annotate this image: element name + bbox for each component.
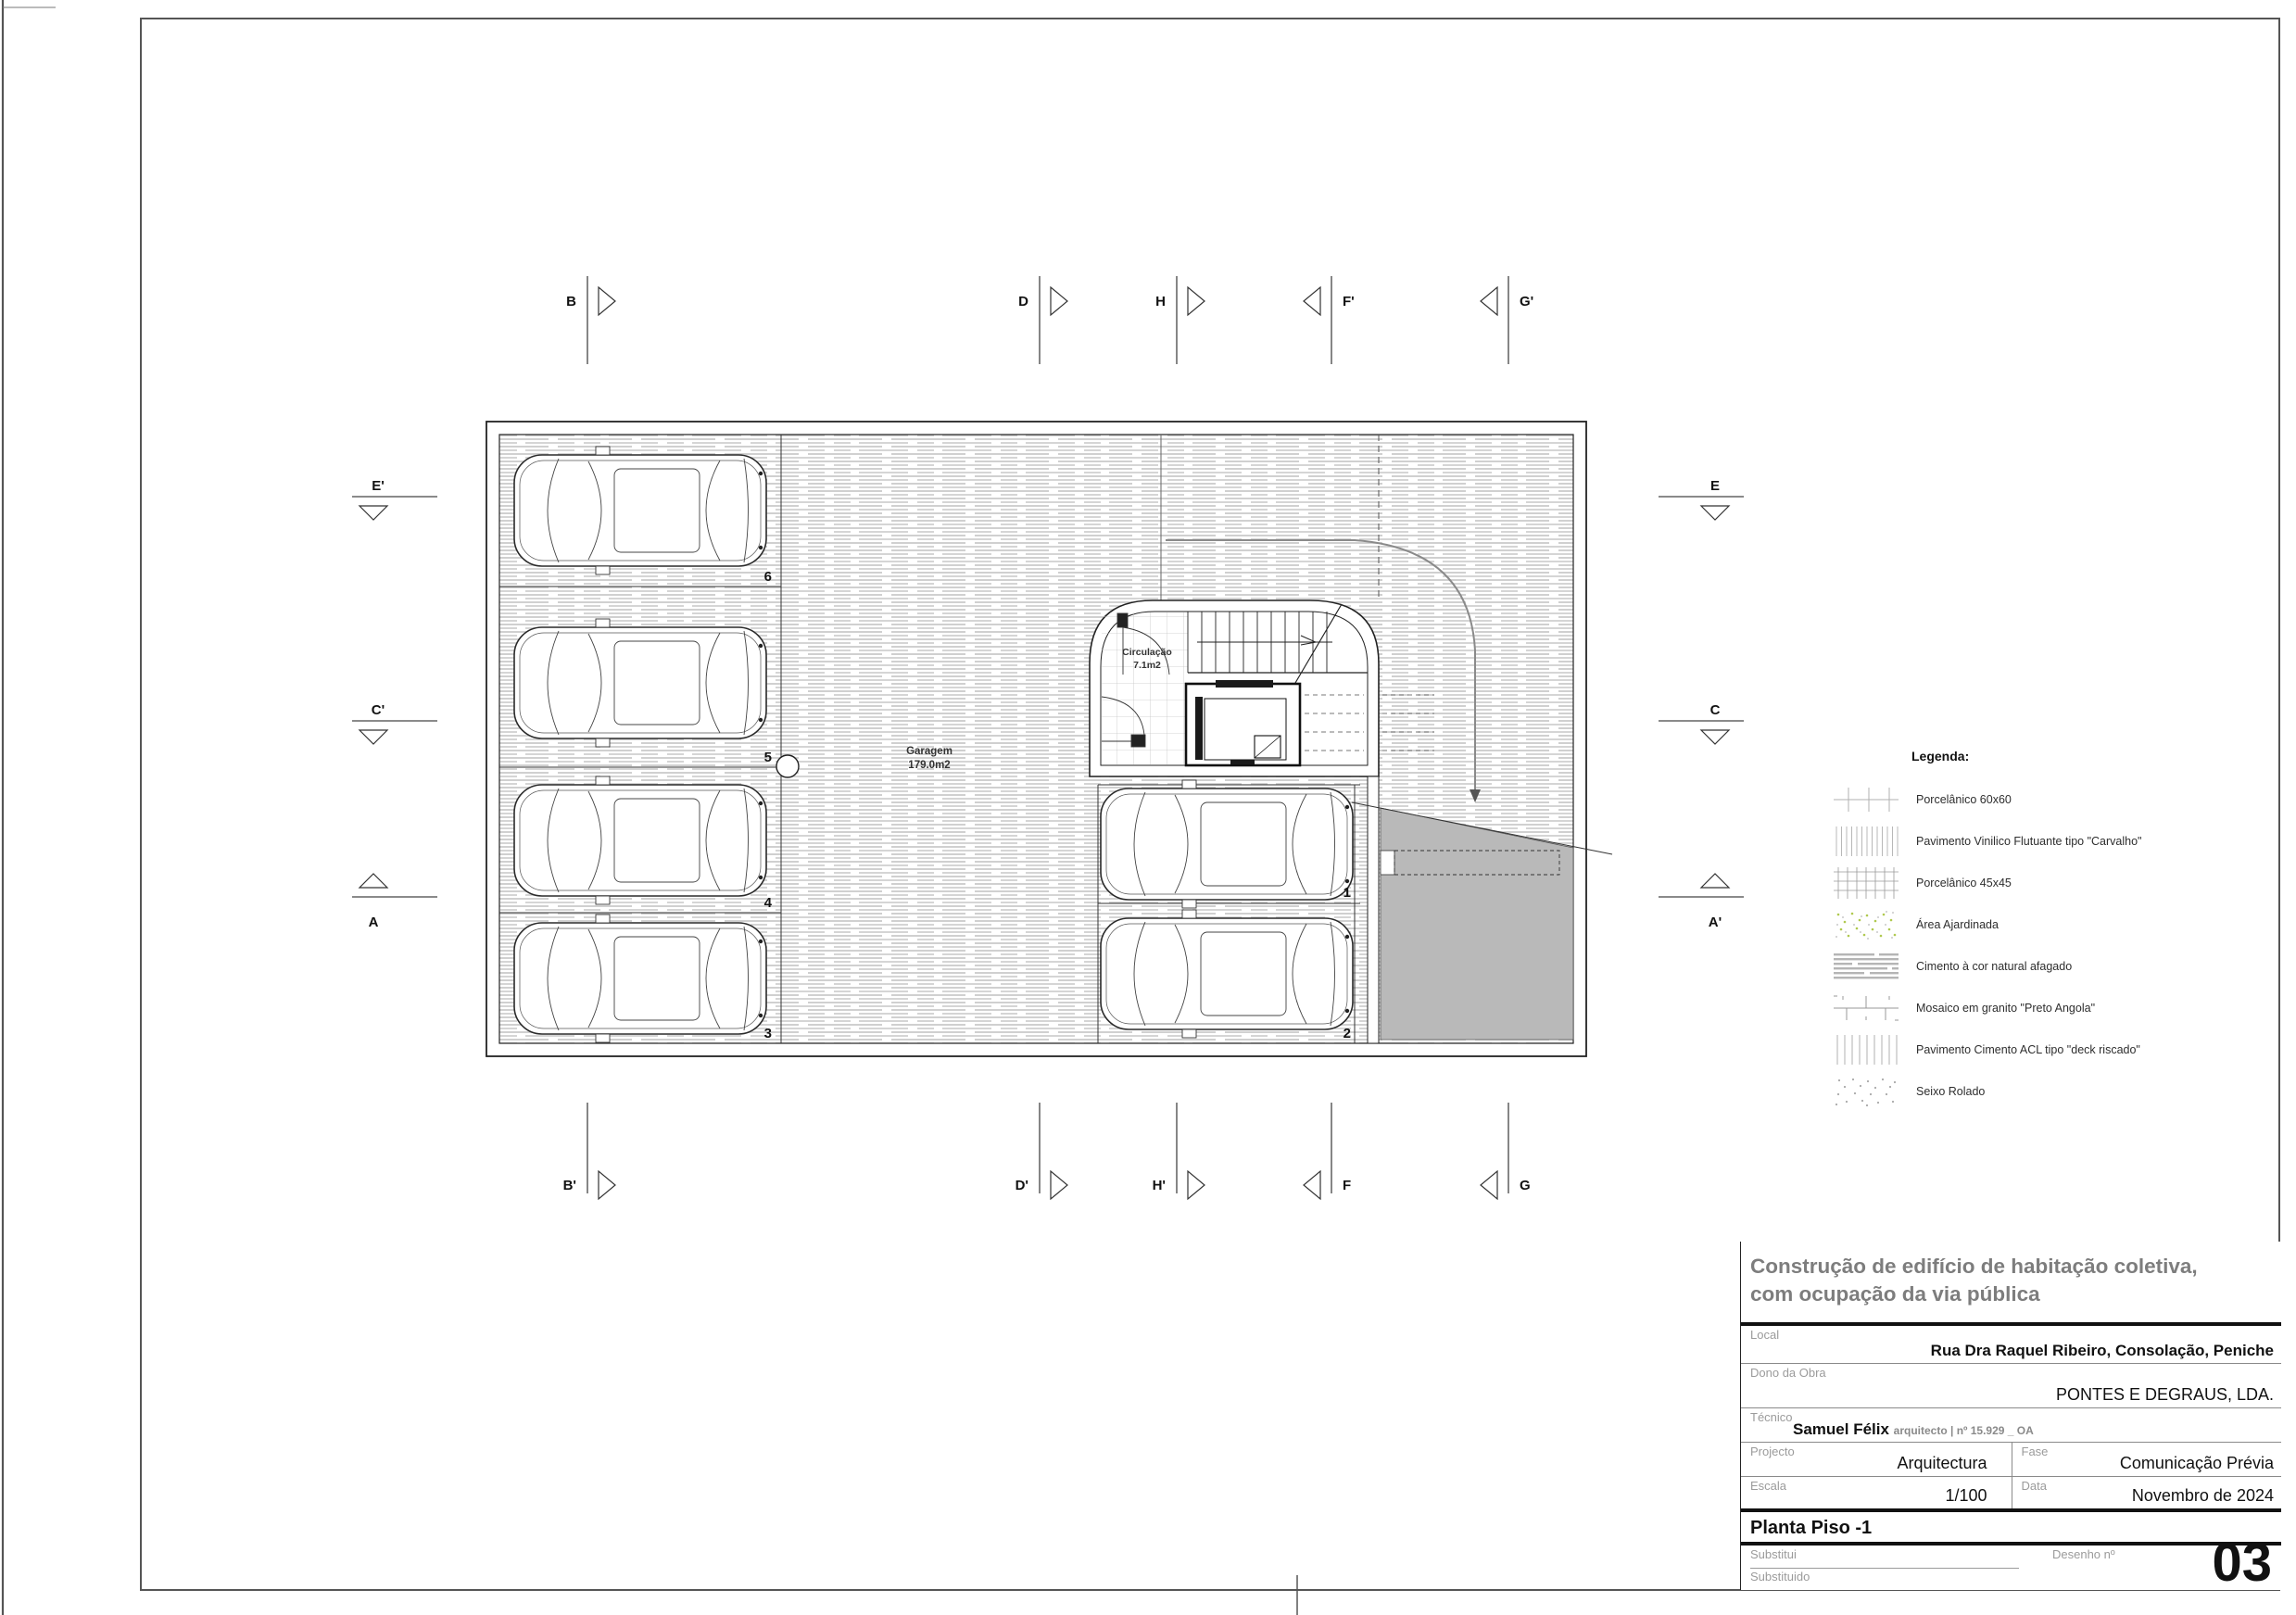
porcelanico-45x45-swatch-icon xyxy=(1834,867,1899,899)
section-marker-D-prime: D' xyxy=(1016,1103,1067,1199)
section-marker-E-prime: E' xyxy=(352,478,437,520)
section-marker-H: H xyxy=(1155,276,1205,364)
projecto-label: Projecto xyxy=(1750,1445,1795,1458)
projecto-value: Arquitectura xyxy=(1897,1454,1987,1473)
section-marker-G-prime: G' xyxy=(1481,276,1533,364)
seixo-rolado-swatch-icon xyxy=(1834,1076,1899,1107)
section-marker-B-prime: B' xyxy=(563,1103,615,1199)
ramp-wall xyxy=(1368,776,1379,1043)
substituido-label: Substituido xyxy=(1750,1570,1810,1583)
drawing-title: Planta Piso -1 xyxy=(1750,1518,1872,1539)
data-value: Novembro de 2024 xyxy=(2132,1486,2274,1506)
legend-item: Mosaico em granito "Preto Angola" xyxy=(1834,987,2251,1028)
vinilico-carvalho-swatch-icon xyxy=(1834,826,1899,857)
project-title: Construção de edifício de habitação cole… xyxy=(1741,1242,2281,1326)
legend-item: Pavimento Vinilico Flutuante tipo "Carva… xyxy=(1834,820,2251,862)
substitui-divider xyxy=(1750,1568,2019,1569)
stall-number-4: 4 xyxy=(764,895,773,911)
car-stall-1 xyxy=(1101,780,1353,908)
legend-label: Seixo Rolado xyxy=(1916,1085,1985,1098)
cimento-acl-deck-swatch-icon xyxy=(1834,1034,1899,1066)
local-label: Local xyxy=(1750,1328,1779,1342)
title-block: Construção de edifício de habitação cole… xyxy=(1740,1242,2281,1590)
dono-da-obra-row: Dono da Obra PONTES E DEGRAUS, LDA. xyxy=(1741,1364,2281,1408)
fase-label: Fase xyxy=(2022,1445,2049,1458)
substitui-label: Substitui xyxy=(1750,1547,1797,1561)
garage-area: 179.0m2 xyxy=(908,760,950,771)
drawing-number: 03 xyxy=(2212,1536,2272,1590)
svg-text:E': E' xyxy=(372,478,385,494)
car-stall-4 xyxy=(514,776,766,904)
svg-text:C: C xyxy=(1710,702,1721,718)
section-marker-C: C xyxy=(1659,702,1744,744)
stall-number-6: 6 xyxy=(764,569,772,585)
legend-label: Mosaico em granito "Preto Angola" xyxy=(1916,1002,2095,1015)
circulation-label: Circulação xyxy=(1122,647,1172,658)
legend-item: Cimento à cor natural afagado xyxy=(1834,945,2251,987)
section-marker-C-prime: C' xyxy=(352,702,437,744)
svg-text:E: E xyxy=(1710,478,1720,494)
stall-number-3: 3 xyxy=(764,1026,772,1041)
section-marker-B: B xyxy=(566,276,615,364)
substitui-row: Substitui Substituido Desenho nº 03 xyxy=(1741,1546,2281,1586)
legend-item: Pavimento Cimento ACL tipo "deck riscado… xyxy=(1834,1028,2251,1070)
legend-item: Porcelânico 45x45 xyxy=(1834,862,2251,903)
legend-item: Seixo Rolado xyxy=(1834,1070,2251,1112)
car-stall-3 xyxy=(514,915,766,1042)
car-stall-6 xyxy=(514,447,766,574)
section-marker-G: G xyxy=(1481,1103,1531,1199)
escala-data-row: Escala 1/100 Data Novembro de 2024 xyxy=(1741,1477,2281,1512)
svg-text:A: A xyxy=(369,915,379,930)
projecto-fase-row: Projecto Arquitectura Fase Comunicação P… xyxy=(1741,1443,2281,1477)
svg-text:H': H' xyxy=(1153,1178,1166,1193)
car-stall-2 xyxy=(1101,910,1353,1038)
porcelanico-60x60-swatch-icon xyxy=(1834,784,1899,815)
dono-da-obra-value: PONTES E DEGRAUS, LDA. xyxy=(2056,1385,2274,1405)
tecnico-row: Técnico Samuel Félix arquitecto | nº 15.… xyxy=(1741,1408,2281,1443)
legend-item: Porcelânico 60x60 xyxy=(1834,778,2251,820)
legend-item: Área Ajardinada xyxy=(1834,903,2251,945)
escala-cell: Escala 1/100 xyxy=(1741,1477,2012,1508)
legend-title: Legenda: xyxy=(1911,749,2251,763)
tecnico-credentials: arquitecto | nº 15.929 _ OA xyxy=(1894,1424,2034,1437)
fase-value: Comunicação Prévia xyxy=(2120,1454,2274,1473)
area-ajardinada-swatch-icon xyxy=(1834,909,1899,940)
drawing-sheet: { "plan": { "garage": { "name": "Garagem… xyxy=(0,0,2296,1615)
escala-label: Escala xyxy=(1750,1479,1786,1493)
drawing-title-row: Planta Piso -1 xyxy=(1741,1512,2281,1546)
desenho-numero-label: Desenho nº xyxy=(2052,1547,2115,1561)
dono-da-obra-label: Dono da Obra xyxy=(1750,1366,1826,1380)
section-marker-H-prime: H' xyxy=(1153,1103,1205,1199)
svg-text:H: H xyxy=(1155,294,1166,309)
data-label: Data xyxy=(2022,1479,2047,1493)
section-marker-E: E xyxy=(1659,478,1744,520)
legend-label: Porcelânico 45x45 xyxy=(1916,877,2012,890)
section-marker-D: D xyxy=(1018,276,1067,364)
section-marker-F-prime: F' xyxy=(1304,276,1355,364)
local-row: Local Rua Dra Raquel Ribeiro, Consolação… xyxy=(1741,1326,2281,1364)
svg-text:B: B xyxy=(566,294,576,309)
legend: Legenda: Porcelânico 60x60 Pavimento Vin… xyxy=(1834,749,2251,1112)
section-marker-F: F xyxy=(1304,1103,1351,1199)
stall-number-1: 1 xyxy=(1344,885,1351,901)
cimento-afagado-swatch-icon xyxy=(1834,951,1899,982)
structural-column xyxy=(776,755,799,777)
svg-text:D': D' xyxy=(1016,1178,1028,1193)
circulation-area: 7.1m2 xyxy=(1133,660,1161,671)
elevator xyxy=(1186,680,1300,765)
garage-plan: 6 5 4 3 Garagem 179.0m2 xyxy=(486,422,1612,1056)
svg-text:F: F xyxy=(1343,1178,1351,1193)
escala-value: 1/100 xyxy=(1945,1486,1987,1506)
svg-text:G: G xyxy=(1520,1178,1531,1193)
tecnico-value: Samuel Félix arquitecto | nº 15.929 _ OA xyxy=(1793,1420,2034,1439)
svg-text:C': C' xyxy=(372,702,385,718)
mosaico-granito-swatch-icon xyxy=(1834,992,1899,1024)
section-marker-A: A xyxy=(352,874,437,930)
svg-text:F': F' xyxy=(1343,294,1355,309)
legend-label: Pavimento Vinilico Flutuante tipo "Carva… xyxy=(1916,835,2142,848)
legend-label: Pavimento Cimento ACL tipo "deck riscado… xyxy=(1916,1043,2140,1056)
legend-label: Porcelânico 60x60 xyxy=(1916,793,2012,806)
local-value: Rua Dra Raquel Ribeiro, Consolação, Peni… xyxy=(1931,1342,2274,1360)
project-title-line1: Construção de edifício de habitação cole… xyxy=(1750,1253,2276,1281)
garage-label: Garagem xyxy=(906,746,952,757)
data-cell: Data Novembro de 2024 xyxy=(2012,1477,2282,1508)
projecto-cell: Projecto Arquitectura xyxy=(1741,1443,2012,1476)
legend-label: Cimento à cor natural afagado xyxy=(1916,960,2072,973)
car-stall-5 xyxy=(514,619,766,747)
svg-text:B': B' xyxy=(563,1178,576,1193)
tecnico-label: Técnico xyxy=(1750,1410,1793,1424)
section-marker-A-prime: A' xyxy=(1659,874,1744,930)
stall-number-5: 5 xyxy=(764,750,772,765)
svg-text:A': A' xyxy=(1709,915,1722,930)
fase-cell: Fase Comunicação Prévia xyxy=(2012,1443,2282,1476)
legend-label: Área Ajardinada xyxy=(1916,918,1999,931)
svg-text:G': G' xyxy=(1520,294,1533,309)
project-title-line2: com ocupação da via pública xyxy=(1750,1281,2276,1308)
stall-number-2: 2 xyxy=(1344,1026,1351,1041)
svg-text:D: D xyxy=(1018,294,1028,309)
